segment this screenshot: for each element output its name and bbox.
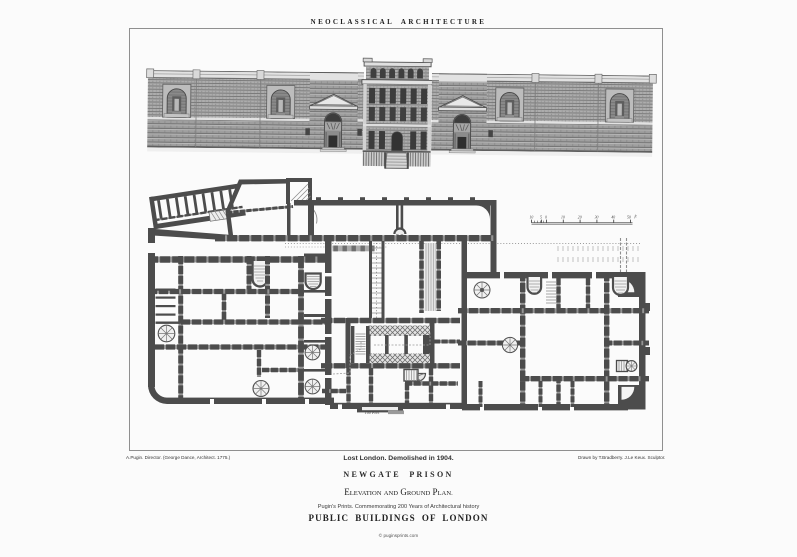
svg-text:5: 5 bbox=[540, 215, 542, 219]
svg-text:50: 50 bbox=[627, 215, 631, 219]
svg-text:10: 10 bbox=[561, 215, 565, 219]
svg-text:10: 10 bbox=[530, 215, 534, 219]
svg-text:100 Feet: 100 Feet bbox=[365, 410, 381, 415]
svg-text:30: 30 bbox=[595, 215, 599, 219]
svg-text:20: 20 bbox=[578, 215, 582, 219]
svg-text:0: 0 bbox=[545, 215, 547, 219]
svg-text:ft: ft bbox=[635, 215, 638, 219]
svg-text:40: 40 bbox=[611, 215, 615, 219]
